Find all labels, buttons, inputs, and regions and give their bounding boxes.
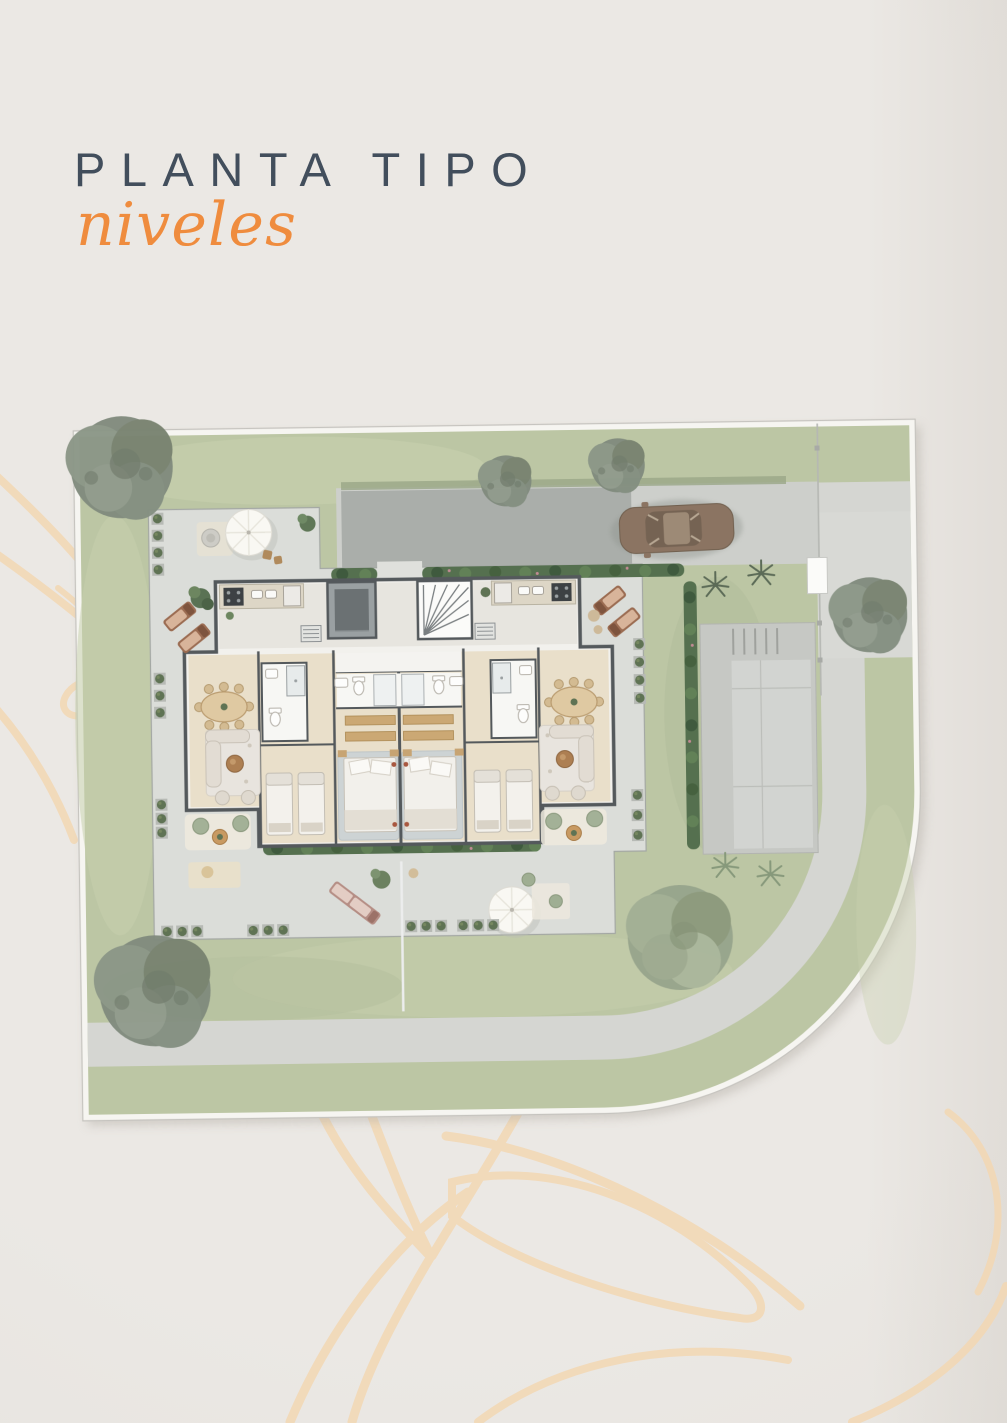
living-room-left (205, 729, 260, 805)
master-bedroom-left (337, 715, 400, 840)
pouf-seating-right (541, 809, 607, 846)
master-ensuites (334, 652, 463, 708)
staircase (417, 580, 472, 639)
pouf-seating-left (185, 813, 251, 850)
bathroom-right (490, 659, 536, 738)
bathroom-left (261, 663, 307, 742)
rear-concrete-pad (700, 623, 818, 855)
dark-paving-pad (341, 487, 632, 568)
living-room-right (539, 725, 594, 801)
elevator (327, 582, 376, 639)
kitchen-left (219, 584, 303, 609)
entry-gate (807, 557, 828, 593)
site-plan-svg (0, 0, 1007, 1423)
building (183, 576, 615, 847)
kitchen-right (491, 580, 575, 605)
brochure-page: PLANTA TIPO niveles (0, 0, 1007, 1423)
